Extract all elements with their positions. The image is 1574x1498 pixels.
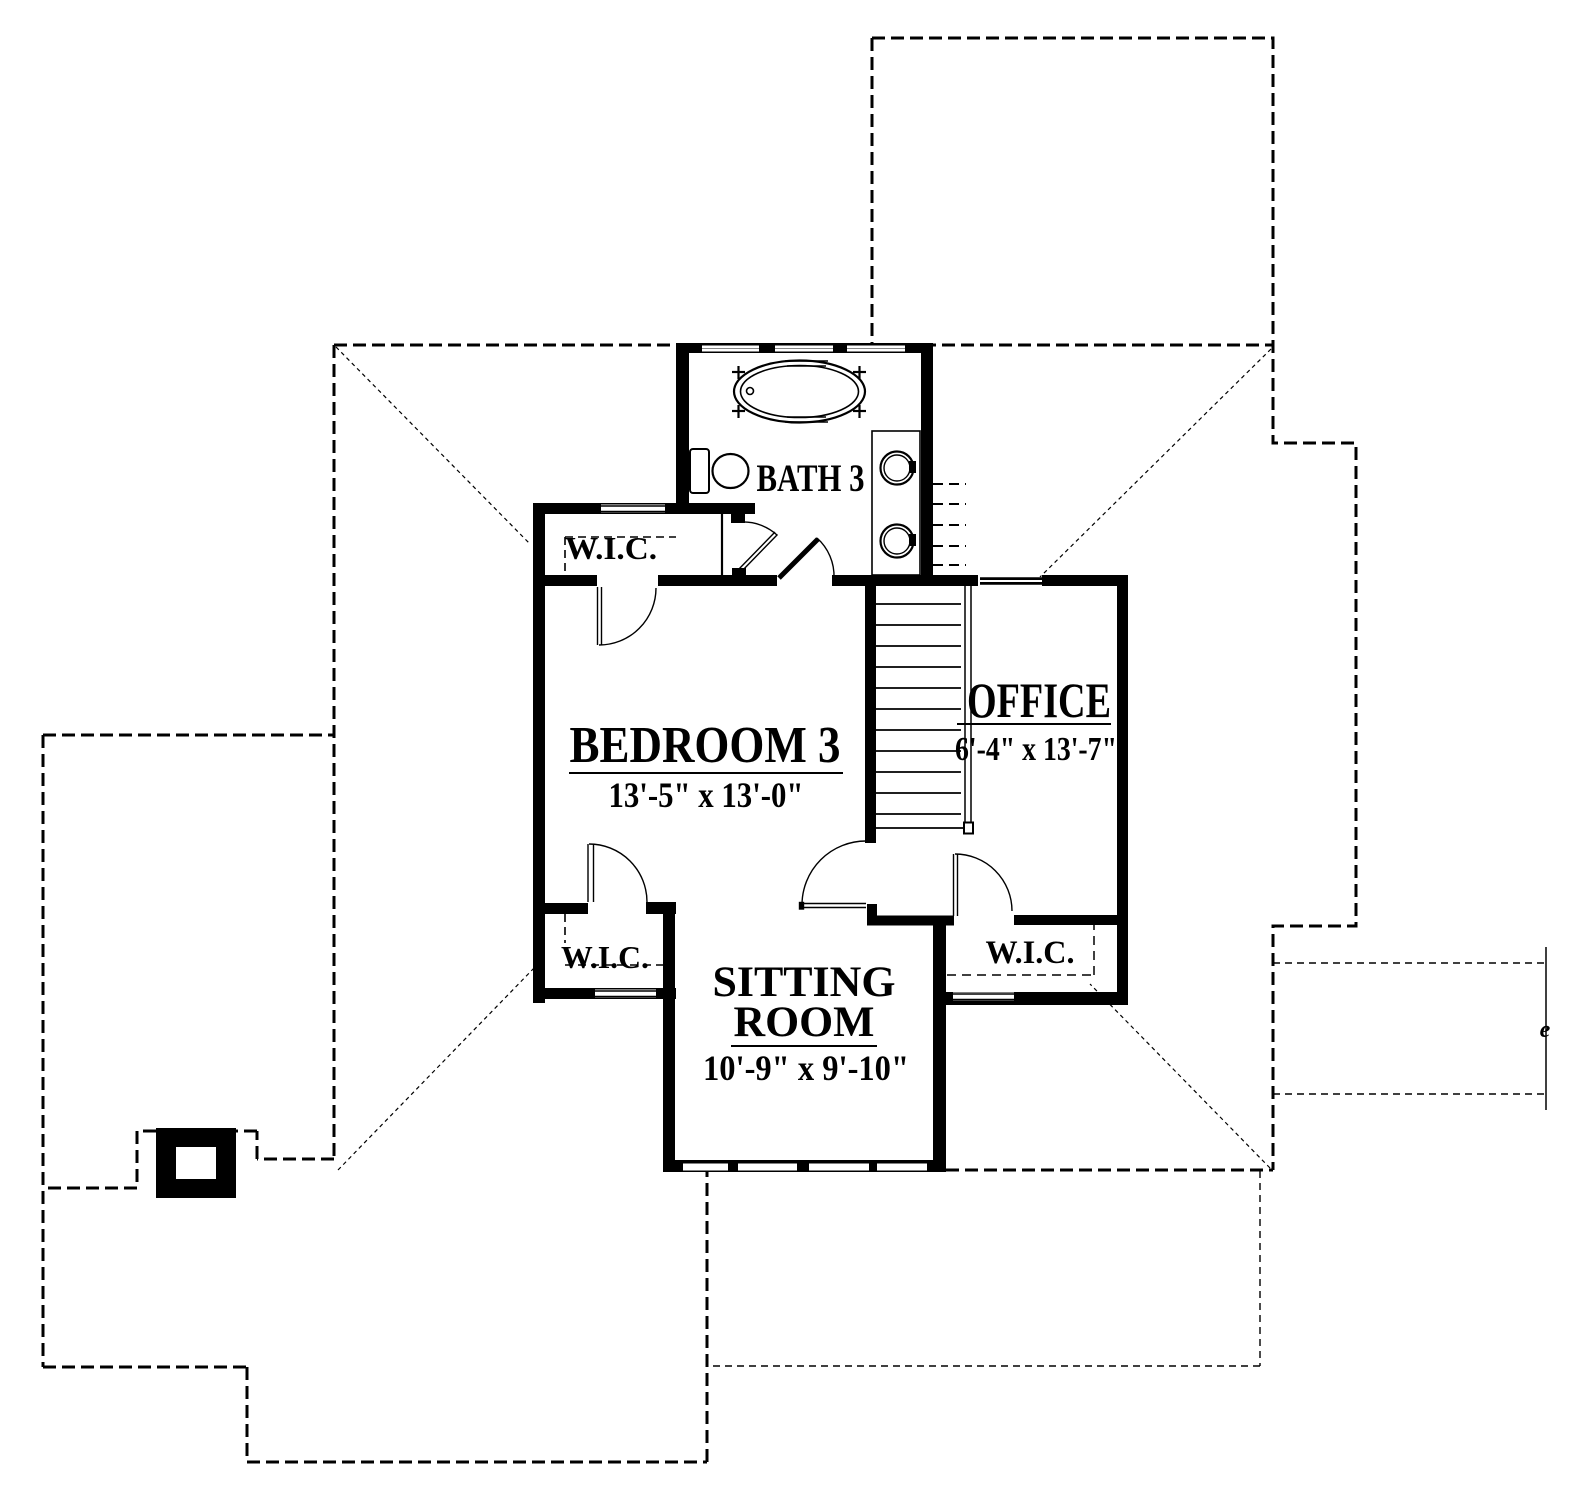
svg-text:ROOM: ROOM bbox=[734, 999, 875, 1046]
svg-text:10'-9" x 9'-10": 10'-9" x 9'-10" bbox=[703, 1048, 909, 1088]
svg-text:e: e bbox=[1540, 1017, 1551, 1043]
svg-text:W.I.C.: W.I.C. bbox=[565, 530, 657, 566]
svg-text:BEDROOM 3: BEDROOM 3 bbox=[570, 717, 841, 774]
svg-text:13'-5" x 13'-0": 13'-5" x 13'-0" bbox=[609, 775, 804, 815]
svg-text:W.I.C.: W.I.C. bbox=[561, 939, 649, 975]
svg-text:6'-4" x 13'-7": 6'-4" x 13'-7" bbox=[955, 731, 1117, 768]
svg-text:BATH 3: BATH 3 bbox=[757, 457, 865, 500]
svg-text:OFFICE: OFFICE bbox=[967, 672, 1111, 728]
svg-text:W.I.C.: W.I.C. bbox=[986, 935, 1075, 971]
